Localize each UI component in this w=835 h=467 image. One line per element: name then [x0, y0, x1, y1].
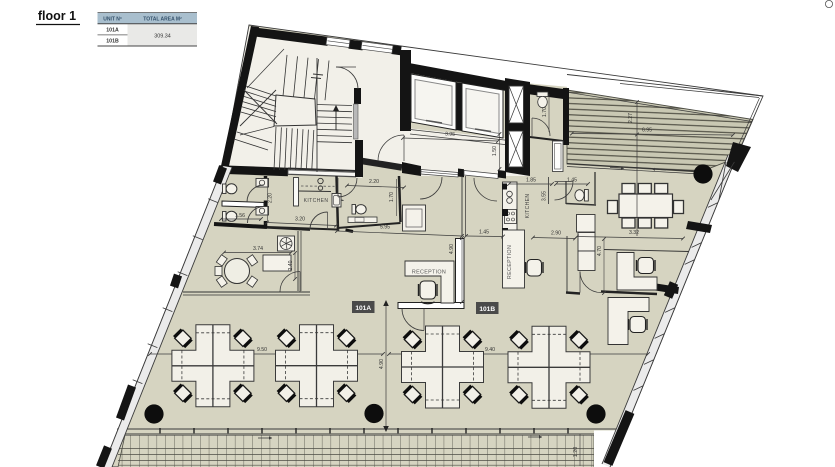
svg-text:RECEPTION: RECEPTION — [507, 245, 513, 279]
svg-text:2.20: 2.20 — [268, 193, 274, 203]
svg-text:UNIT Nº: UNIT Nº — [103, 17, 122, 23]
svg-text:309.34: 309.34 — [154, 34, 171, 40]
svg-text:101A: 101A — [355, 305, 371, 312]
svg-text:3.20: 3.20 — [295, 217, 305, 223]
svg-text:1.45: 1.45 — [567, 178, 577, 184]
svg-text:TOTAL AREA M²: TOTAL AREA M² — [143, 17, 182, 23]
svg-text:RECEPTION: RECEPTION — [412, 270, 446, 276]
svg-text:1.45: 1.45 — [479, 230, 489, 236]
svg-text:1.85: 1.85 — [526, 178, 536, 184]
svg-text:1.70: 1.70 — [389, 192, 395, 202]
svg-text:1.20: 1.20 — [573, 447, 579, 458]
svg-text:5.95: 5.95 — [380, 225, 390, 231]
svg-text:1.56: 1.56 — [235, 213, 245, 219]
svg-text:3.55: 3.55 — [542, 191, 548, 201]
svg-text:2.40: 2.40 — [288, 260, 294, 270]
svg-text:4.90: 4.90 — [449, 244, 455, 254]
svg-text:2.90: 2.90 — [551, 231, 561, 237]
svg-text:2.27: 2.27 — [628, 113, 634, 123]
svg-text:floor 1: floor 1 — [38, 9, 76, 23]
svg-text:3.74: 3.74 — [253, 246, 263, 252]
svg-text:4.90: 4.90 — [379, 359, 385, 369]
svg-text:KITCHEN: KITCHEN — [304, 198, 329, 204]
svg-text:101B: 101B — [479, 306, 495, 313]
svg-text:4.70: 4.70 — [597, 246, 603, 256]
svg-text:1.70: 1.70 — [542, 107, 548, 117]
svg-text:3.32: 3.32 — [629, 230, 639, 236]
svg-text:6.95: 6.95 — [642, 128, 652, 134]
svg-text:2.20: 2.20 — [369, 179, 379, 185]
svg-text:3.95: 3.95 — [445, 131, 455, 137]
svg-text:KITCHEN: KITCHEN — [525, 194, 531, 219]
svg-text:9.40: 9.40 — [485, 347, 495, 353]
svg-text:101B: 101B — [106, 39, 119, 45]
svg-text:1.50: 1.50 — [492, 146, 498, 156]
svg-text:101A: 101A — [106, 28, 119, 34]
svg-text:9.50: 9.50 — [257, 347, 267, 353]
